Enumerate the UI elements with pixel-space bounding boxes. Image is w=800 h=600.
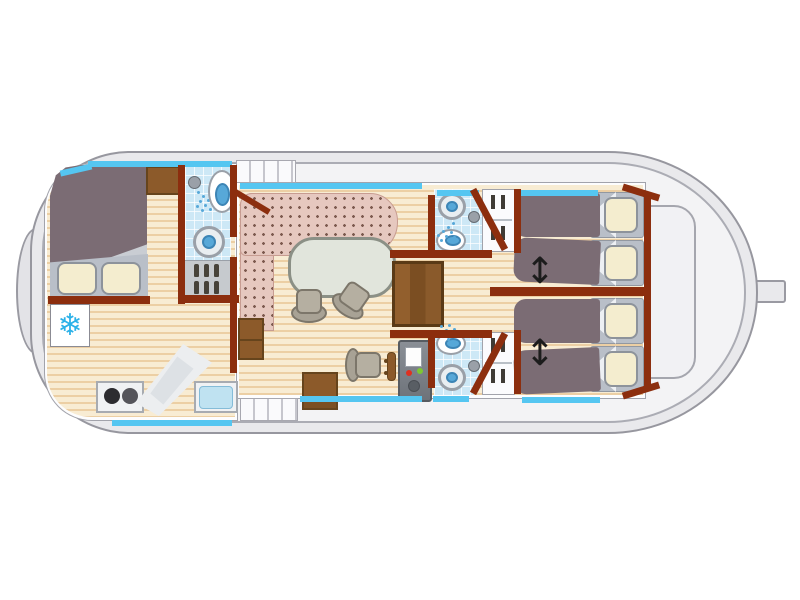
instrument-console	[398, 340, 432, 402]
partition-wall	[390, 250, 492, 258]
helm-seat	[345, 345, 387, 385]
hanging-clothes-icon	[491, 195, 495, 209]
window-strip	[522, 397, 600, 403]
single-berth-blanket	[514, 193, 600, 237]
berth-foot-wall	[48, 296, 150, 304]
pillow	[101, 262, 141, 295]
swivel-chair	[291, 289, 329, 325]
window-strip	[433, 396, 469, 402]
shower-icon	[468, 211, 480, 223]
pillow	[604, 245, 638, 281]
window-strip	[520, 190, 598, 196]
stove	[96, 381, 144, 413]
bottle-icon	[194, 264, 199, 277]
window-strip	[88, 161, 232, 167]
pillow	[57, 262, 97, 295]
washbasin-icon	[438, 364, 466, 391]
window-strip	[300, 396, 422, 402]
partition-wall	[644, 194, 651, 390]
burner-icon	[122, 388, 138, 404]
toilet-icon	[436, 229, 466, 252]
partition-wall	[514, 189, 521, 253]
aft-deck-steps	[240, 398, 298, 421]
hanging-clothes-icon	[491, 369, 495, 383]
hanging-clothes-icon	[501, 369, 505, 383]
partition-wall	[230, 165, 237, 237]
side-table	[302, 372, 338, 410]
partition-wall	[390, 330, 492, 338]
bottle-icon	[194, 281, 199, 294]
bottle-icon	[204, 281, 209, 294]
window-strip	[240, 183, 422, 189]
snowflake-icon: ❄	[51, 305, 89, 346]
aft-stairs	[392, 261, 444, 327]
partition-wall	[428, 195, 435, 253]
saloon-cabinet	[238, 318, 264, 360]
hanging-clothes-icon	[501, 195, 505, 209]
partition-wall	[514, 330, 521, 394]
partition-wall	[230, 257, 237, 373]
forward-deck-steps	[236, 160, 296, 183]
red-button	[406, 370, 412, 376]
pillow	[604, 351, 638, 387]
partition-wall	[178, 165, 185, 304]
shower-spray-icon	[452, 222, 455, 225]
washbasin-icon	[438, 193, 466, 220]
shower-icon	[468, 360, 480, 372]
bottle-icon	[214, 264, 219, 277]
bed-slide-arrow: ↕	[528, 248, 552, 294]
console-screen	[405, 347, 422, 367]
green-button	[417, 368, 423, 374]
boat-floor-plan: ❄	[0, 0, 800, 600]
bottle-icon	[214, 281, 219, 294]
pillow	[604, 303, 638, 339]
steering-wheel-icon	[387, 352, 396, 381]
partition-wall	[428, 330, 435, 388]
storage-shelf	[184, 260, 232, 297]
partition-wall	[490, 287, 648, 296]
galley-sink	[194, 381, 238, 413]
washbasin-icon	[193, 226, 225, 258]
console-knob	[408, 380, 420, 392]
window-strip	[112, 420, 232, 426]
bottle-icon	[204, 264, 209, 277]
pillow	[604, 197, 638, 233]
burner-icon	[104, 388, 120, 404]
shower-spray-icon	[452, 342, 455, 345]
bed-slide-arrow: ↕	[528, 330, 552, 376]
shower-spray-icon	[197, 191, 200, 194]
fridge-freezer: ❄	[50, 304, 90, 347]
shower-icon	[188, 176, 201, 189]
